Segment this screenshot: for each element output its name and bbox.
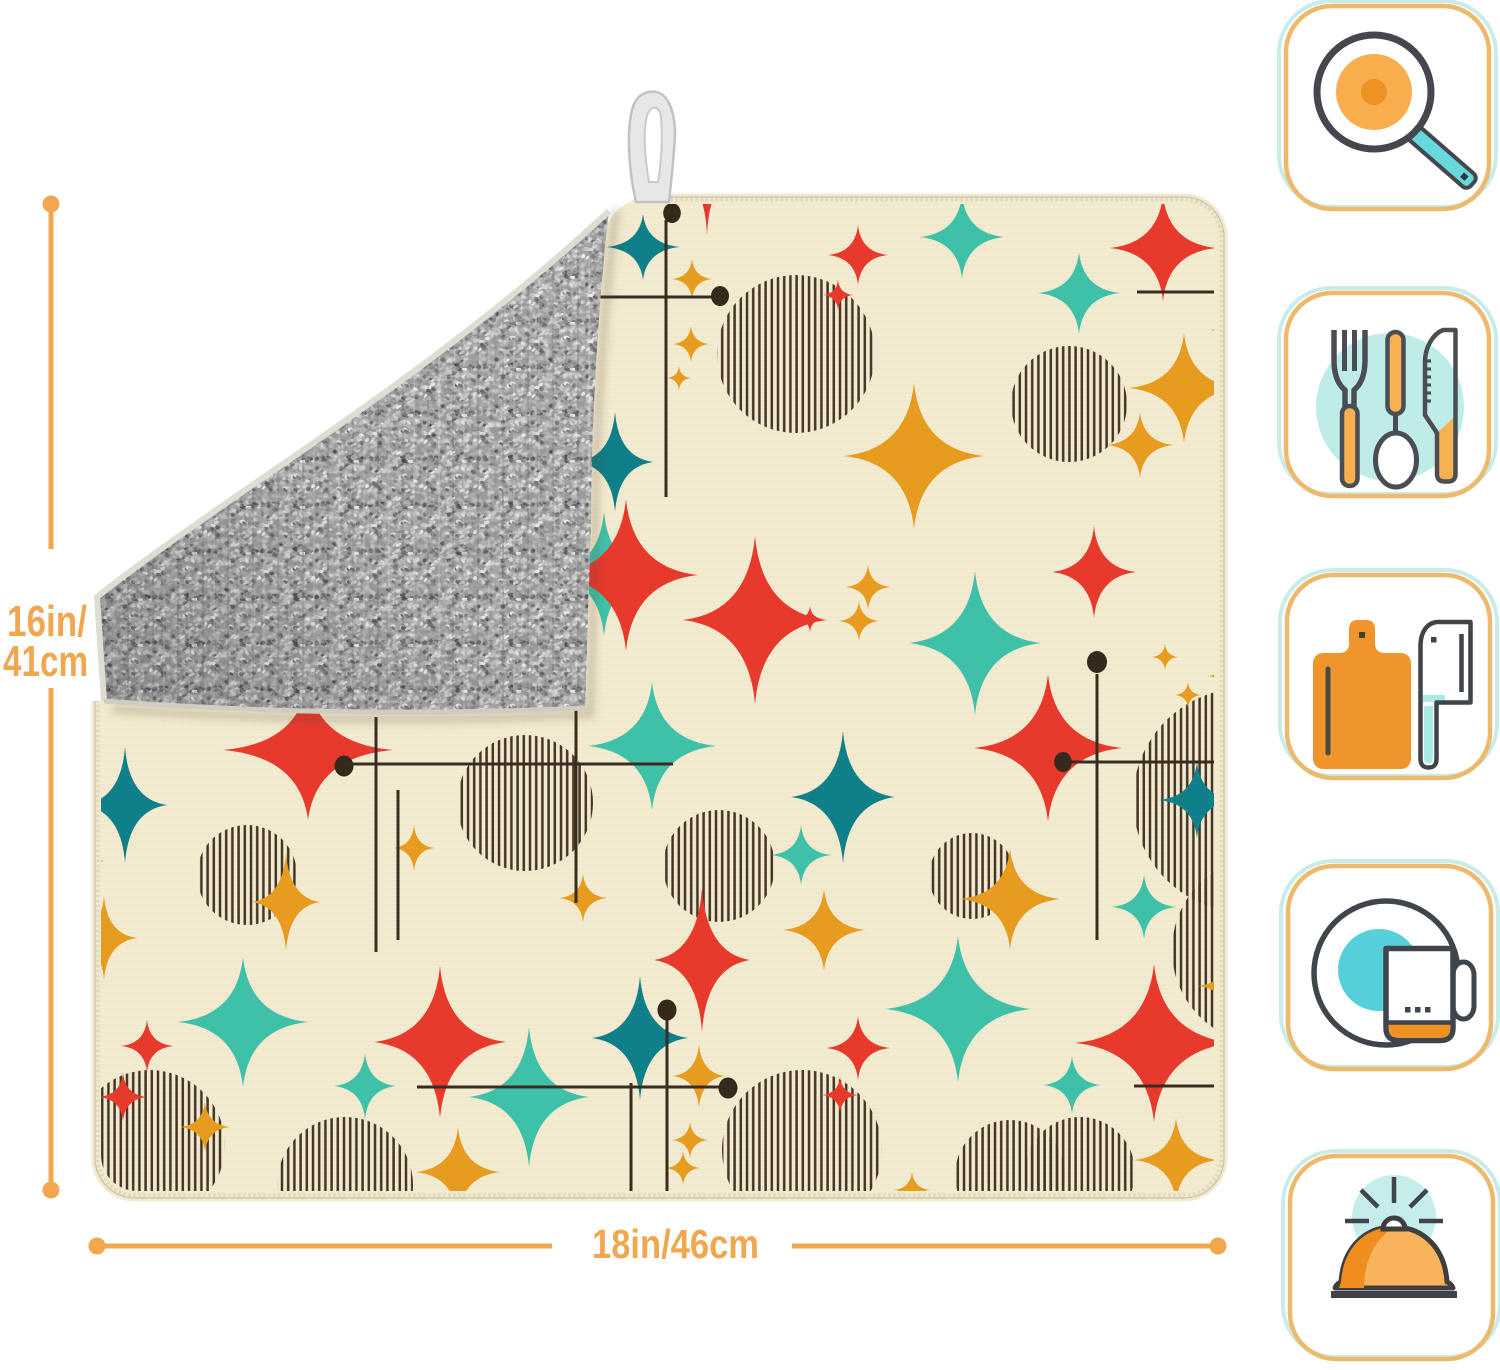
svg-text:41cm: 41cm [3, 637, 88, 686]
svg-text:18in/46cm: 18in/46cm [592, 1221, 759, 1267]
